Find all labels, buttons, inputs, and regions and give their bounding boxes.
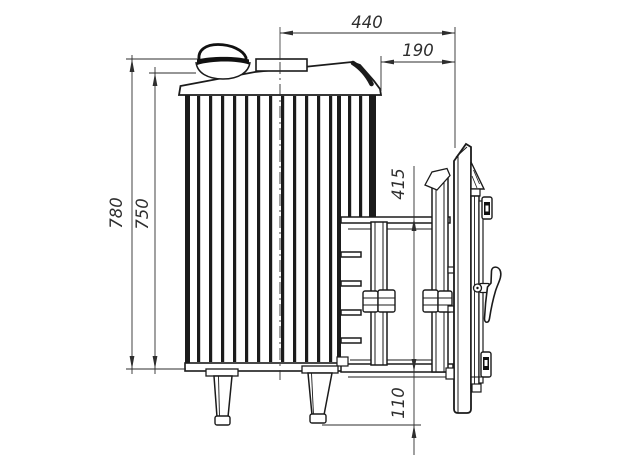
door-frame-plate: [446, 144, 471, 413]
left-foot: [206, 369, 238, 425]
dimension-415: 415: [389, 166, 416, 372]
door-upper-latch: [482, 197, 492, 219]
dim-label-750: 750: [133, 198, 152, 230]
dim-label-190: 190: [402, 41, 434, 60]
door-lower-latch: [481, 352, 491, 377]
chimney-damper: [196, 45, 250, 80]
right-foot: [302, 366, 338, 423]
dim-label-415: 415: [389, 168, 408, 200]
convector-fins: [185, 95, 376, 363]
side-mount-rungs: [341, 252, 361, 343]
stove-feet: [206, 366, 338, 425]
dim-label-440: 440: [351, 13, 383, 32]
technical-drawing-canvas: 440 190 780 750: [0, 0, 624, 460]
dimension-110: 110: [322, 372, 421, 455]
tunnel-right-band: [425, 169, 450, 373]
flue-collar: [256, 59, 307, 71]
fire-door: [471, 162, 501, 392]
door-hinge-bracket: [471, 162, 484, 196]
dim-label-780: 780: [107, 197, 126, 229]
dimension-780: 780: [107, 55, 198, 374]
dimension-190: 190: [381, 41, 455, 91]
tunnel-clamps: [363, 290, 452, 312]
dim-label-110: 110: [389, 387, 408, 419]
